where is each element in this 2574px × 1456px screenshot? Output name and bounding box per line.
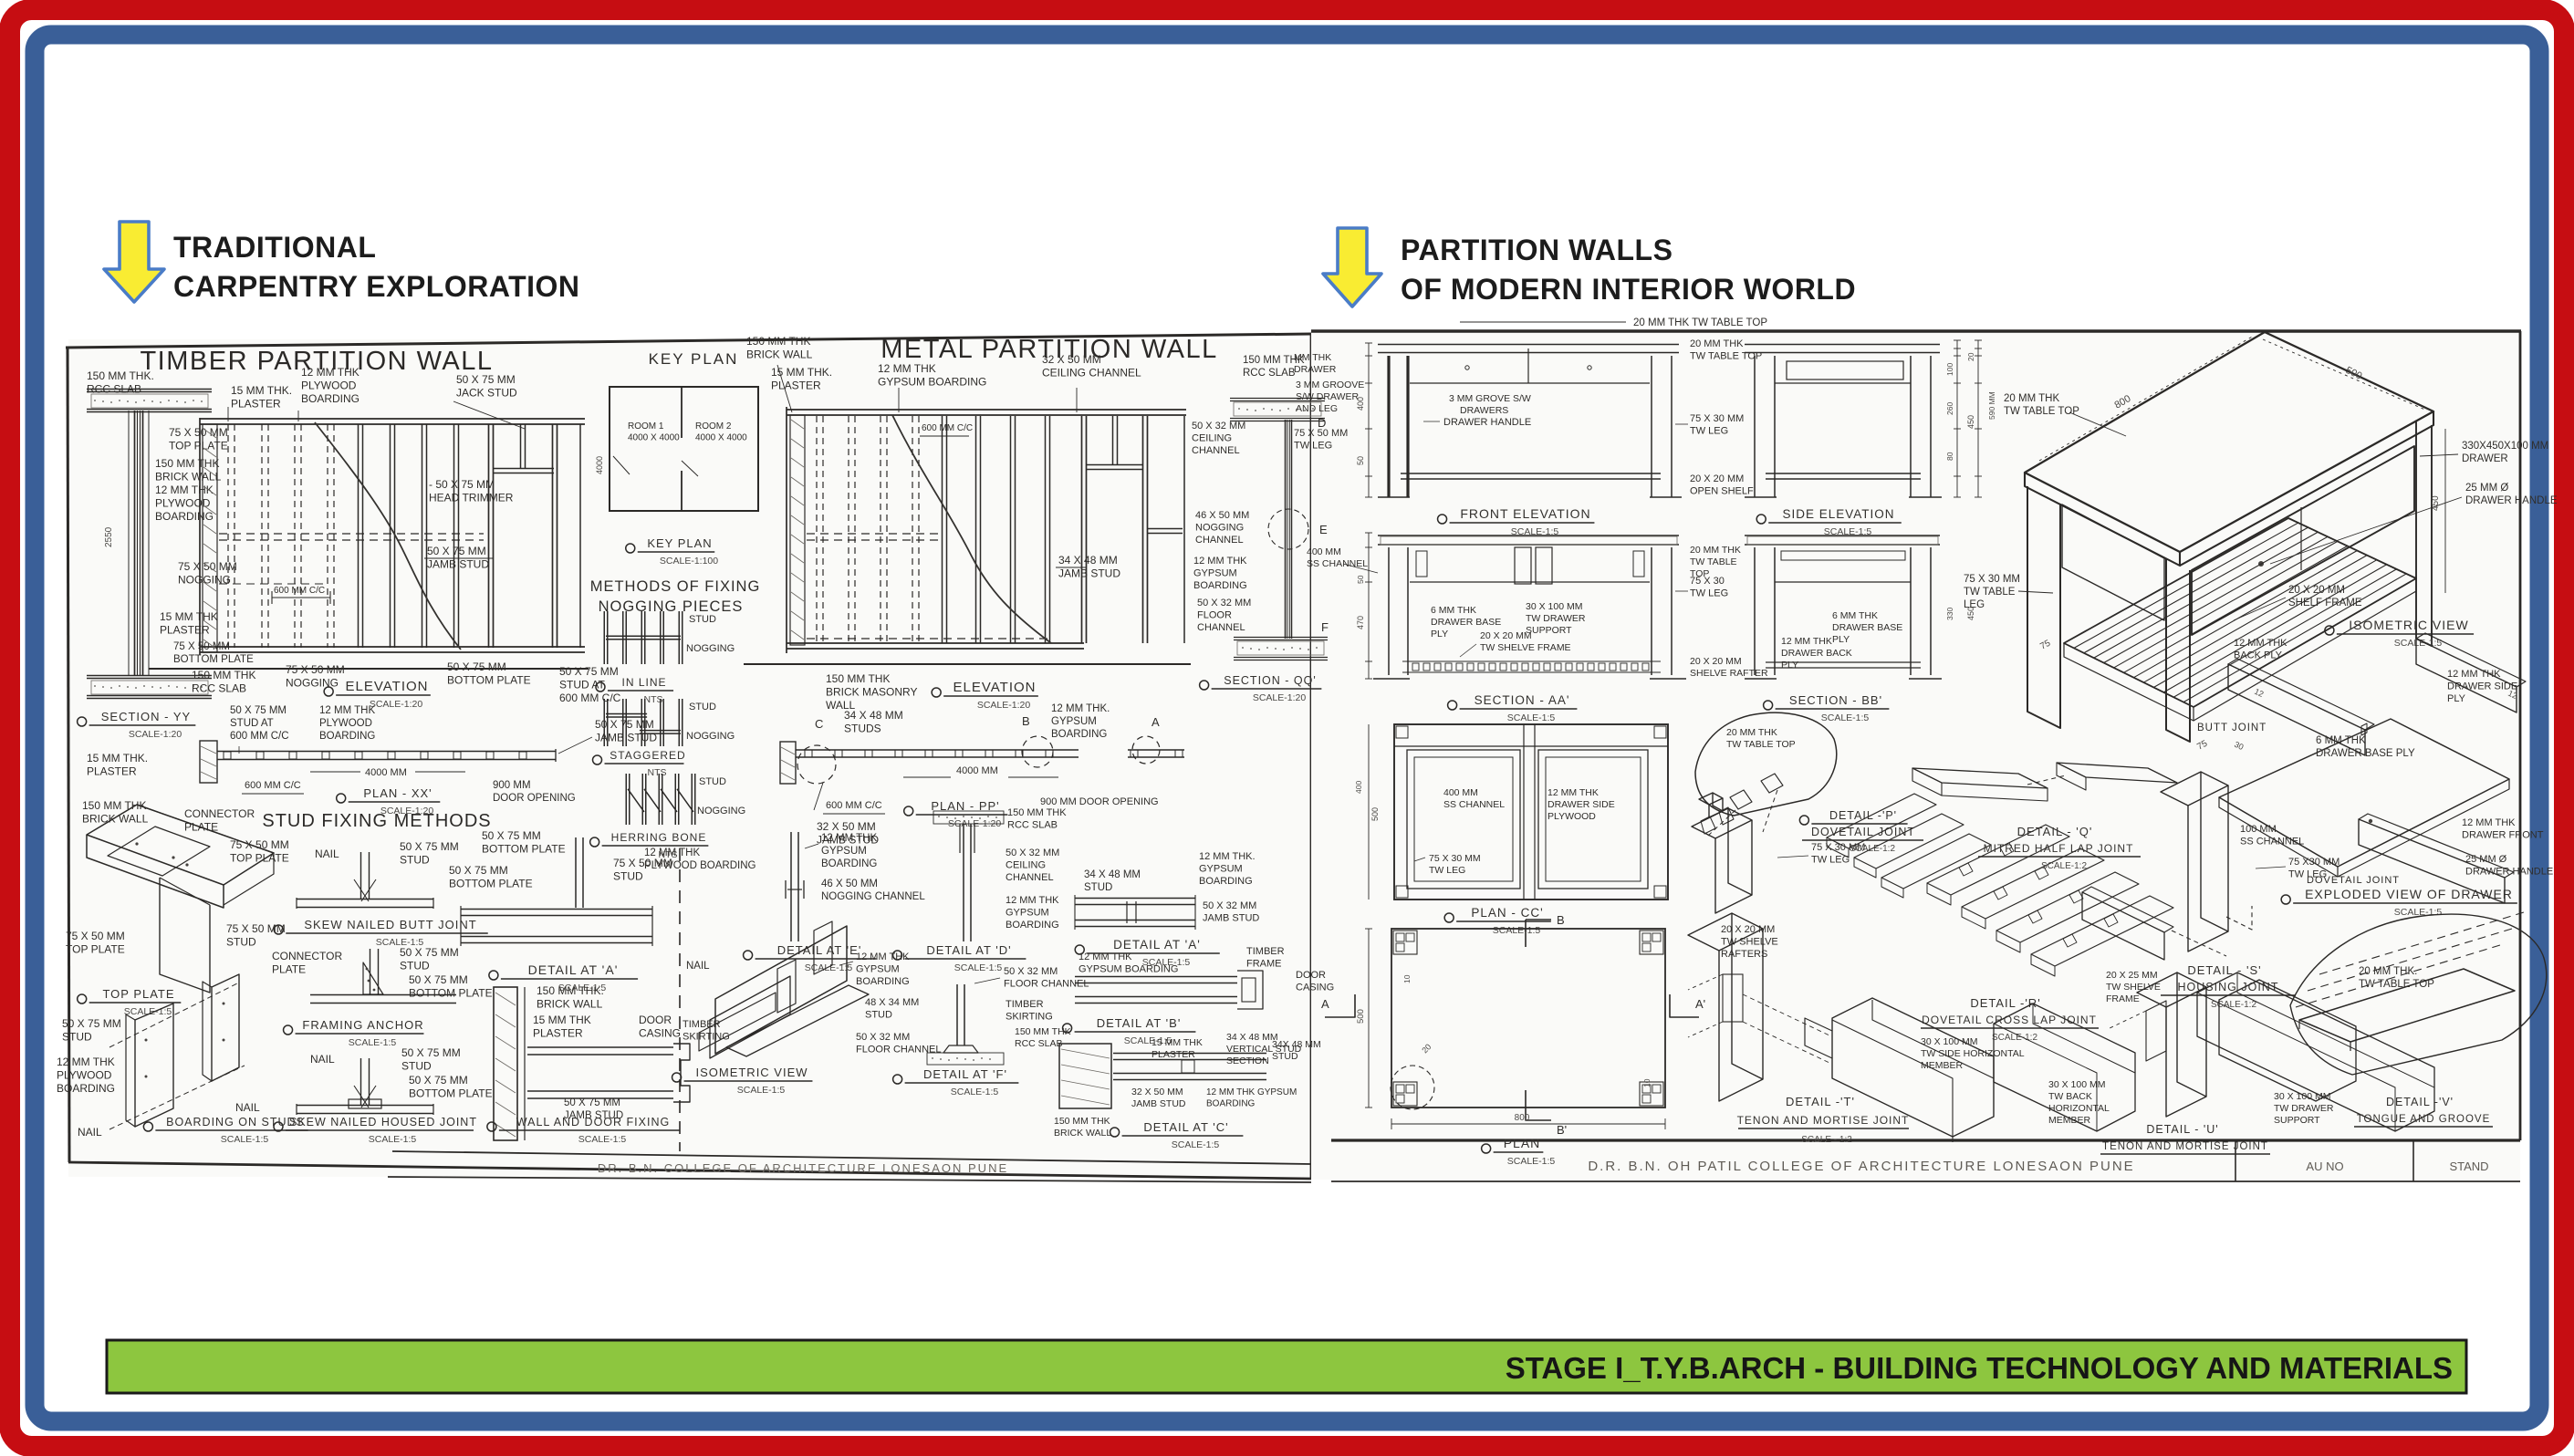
svg-text:JAMB STUD: JAMB STUD (595, 732, 657, 744)
svg-text:400 MM: 400 MM (1443, 787, 1478, 798)
svg-text:75 X 50 MM: 75 X 50 MM (230, 838, 289, 851)
svg-text:ISOMETRIC VIEW: ISOMETRIC VIEW (2349, 618, 2468, 632)
svg-text:BOARDING ON STUDS: BOARDING ON STUDS (166, 1116, 305, 1128)
svg-text:25 MM Ø: 25 MM Ø (2465, 854, 2507, 865)
svg-text:DOOR OPENING: DOOR OPENING (493, 793, 576, 804)
svg-text:20 X 20 MM: 20 X 20 MM (2288, 585, 2345, 596)
svg-text:450: 450 (2431, 495, 2441, 511)
svg-text:600 MM C/C: 600 MM C/C (274, 586, 325, 596)
svg-text:DOVETAIL JOINT: DOVETAIL JOINT (2307, 875, 2400, 886)
svg-text:400: 400 (1354, 781, 1363, 794)
svg-text:BOARDING: BOARDING (1206, 1099, 1256, 1109)
svg-text:BOARDING: BOARDING (301, 392, 360, 405)
svg-text:12 MM THK: 12 MM THK (319, 705, 375, 716)
svg-text:50 X 75 MM: 50 X 75 MM (456, 373, 516, 386)
svg-text:BRICK WALL: BRICK WALL (746, 348, 813, 361)
svg-text:TW TABLE TOP: TW TABLE TOP (2359, 979, 2434, 990)
svg-text:SCALE-1:20: SCALE-1:20 (370, 699, 423, 710)
svg-text:RCC SLAB: RCC SLAB (1243, 368, 1296, 379)
svg-text:SS CHANNEL: SS CHANNEL (1443, 799, 1505, 810)
svg-text:4000 X 4000: 4000 X 4000 (628, 433, 680, 443)
svg-text:SCALE-1:5: SCALE-1:5 (951, 1087, 999, 1097)
svg-text:NAIL: NAIL (686, 961, 710, 972)
svg-text:12 MM THK: 12 MM THK (155, 484, 214, 496)
svg-text:12 MM THK: 12 MM THK (1193, 556, 1247, 567)
svg-text:12 MM THK: 12 MM THK (821, 833, 877, 844)
svg-text:TIMBER: TIMBER (1006, 999, 1044, 1010)
svg-text:SCALE-1:5: SCALE-1:5 (369, 1134, 417, 1145)
svg-text:GYPSUM: GYPSUM (821, 846, 867, 857)
svg-text:FLOOR CHANNEL: FLOOR CHANNEL (856, 1045, 942, 1056)
svg-text:STUD AT: STUD AT (559, 679, 605, 692)
svg-text:PLASTER: PLASTER (231, 398, 281, 411)
svg-text:GYPSUM BOARDING: GYPSUM BOARDING (878, 376, 986, 389)
svg-text:500: 500 (1356, 1009, 1366, 1024)
svg-text:12 MM THK: 12 MM THK (644, 848, 700, 858)
svg-text:TW LEG: TW LEG (1429, 865, 1465, 876)
svg-text:CASING: CASING (1296, 983, 1334, 993)
svg-text:IN LINE: IN LINE (621, 676, 666, 689)
svg-text:FRAME: FRAME (1246, 959, 1282, 970)
svg-text:DR. B.N. COLLEGE OF ARCHITECTU: DR. B.N. COLLEGE OF ARCHITECTURE LONESAO… (598, 1161, 1008, 1175)
svg-text:800: 800 (1515, 1113, 1530, 1123)
svg-text:TIMBER: TIMBER (683, 1019, 721, 1030)
svg-text:DETAIL -'R': DETAIL -'R' (1970, 996, 2040, 1010)
svg-text:30 X 100 MM: 30 X 100 MM (2274, 1091, 2330, 1102)
svg-text:TONGUE AND GROOVE: TONGUE AND GROOVE (2357, 1114, 2491, 1125)
svg-text:20 MM THK: 20 MM THK (1726, 727, 1777, 738)
svg-text:GYPSUM: GYPSUM (856, 964, 900, 975)
svg-text:DETAIL - 'Q': DETAIL - 'Q' (2017, 825, 2093, 838)
svg-text:CONNECTOR: CONNECTOR (184, 807, 255, 820)
svg-text:12 MM THK GYPSUM: 12 MM THK GYPSUM (1206, 1087, 1297, 1097)
svg-text:75 X 50 MM: 75 X 50 MM (66, 930, 125, 942)
svg-text:SKIRTING: SKIRTING (683, 1032, 730, 1043)
svg-text:A: A (1321, 997, 1329, 1011)
svg-text:12 MM THK: 12 MM THK (301, 366, 360, 379)
svg-text:34 X 48 MM: 34 X 48 MM (844, 709, 903, 722)
svg-text:12 MM THK: 12 MM THK (1548, 787, 1599, 798)
svg-text:STUD: STUD (689, 702, 716, 712)
svg-text:CHANNEL: CHANNEL (1197, 622, 1245, 633)
svg-text:BRICK WALL: BRICK WALL (1054, 1128, 1111, 1139)
svg-text:TW TABLE: TW TABLE (1964, 587, 2016, 598)
svg-text:PLY: PLY (2447, 693, 2466, 704)
svg-text:32 X 50 MM: 32 X 50 MM (1131, 1087, 1183, 1097)
svg-text:DETAIL - 'S': DETAIL - 'S' (2187, 963, 2261, 977)
svg-text:12 MM THK: 12 MM THK (1006, 895, 1059, 906)
svg-text:BACK PLY: BACK PLY (2234, 650, 2283, 661)
svg-text:75 X 30 MM: 75 X 30 MM (1964, 574, 2020, 585)
svg-text:BOTTOM PLATE: BOTTOM PLATE (409, 987, 493, 1000)
svg-text:HOUSING JOINT: HOUSING JOINT (2178, 981, 2279, 993)
svg-text:600 MM C/C: 600 MM C/C (559, 692, 621, 704)
svg-text:20 MM THK.: 20 MM THK. (2359, 966, 2417, 977)
svg-text:CONNECTOR: CONNECTOR (272, 950, 342, 962)
svg-text:DOOR: DOOR (639, 1014, 672, 1026)
svg-text:BOARDING: BOARDING (319, 731, 375, 742)
svg-text:SCALE - 1:2: SCALE - 1:2 (1801, 1135, 1852, 1145)
svg-text:NOGGING: NOGGING (1195, 523, 1244, 534)
svg-text:NOGGING: NOGGING (697, 806, 745, 816)
svg-text:BRICK WALL: BRICK WALL (537, 998, 603, 1011)
svg-text:900 MM: 900 MM (493, 780, 531, 791)
svg-text:500: 500 (1370, 807, 1380, 821)
svg-text:SCALE-1:5: SCALE-1:5 (1172, 1139, 1220, 1150)
svg-text:ROOM 1: ROOM 1 (628, 421, 664, 432)
svg-text:STAGE I_T.Y.B.ARCH - BUILDING: STAGE I_T.Y.B.ARCH - BUILDING TECHNOLOGY… (1506, 1351, 2453, 1385)
svg-text:2550: 2550 (104, 526, 114, 547)
svg-text:SCALE-1:5: SCALE-1:5 (954, 962, 1003, 973)
svg-text:STUD: STUD (226, 936, 256, 949)
svg-text:DRAWER SIDE: DRAWER SIDE (2447, 681, 2517, 692)
svg-text:600 MM C/C: 600 MM C/C (826, 800, 882, 811)
svg-text:BRICK WALL: BRICK WALL (155, 471, 222, 484)
svg-text:4000 MM: 4000 MM (956, 765, 998, 776)
svg-text:PLAN - CC': PLAN - CC' (1471, 906, 1543, 920)
svg-text:TOP PLATE: TOP PLATE (169, 440, 228, 452)
svg-text:150 MM THK.: 150 MM THK. (537, 984, 604, 997)
svg-text:BOARDING: BOARDING (856, 976, 910, 987)
svg-text:12 MM THK.: 12 MM THK. (1051, 703, 1110, 714)
svg-text:46 X 50 MM: 46 X 50 MM (1195, 510, 1249, 521)
svg-text:SECTION: SECTION (1226, 1056, 1269, 1066)
svg-text:PLASTER: PLASTER (771, 380, 821, 392)
svg-text:50 X 32 MM: 50 X 32 MM (1192, 421, 1245, 432)
svg-text:12 MM THK: 12 MM THK (1079, 952, 1132, 962)
svg-text:SCALE-1:5: SCALE-1:5 (349, 1037, 397, 1048)
svg-text:BOARDING: BOARDING (1006, 920, 1059, 931)
svg-text:20 MM THK: 20 MM THK (1690, 338, 1744, 349)
svg-text:JAMB STUD: JAMB STUD (1131, 1098, 1186, 1109)
svg-text:DOVETAIL JOINT: DOVETAIL JOINT (1811, 826, 1915, 838)
svg-text:PLASTER: PLASTER (87, 765, 137, 778)
svg-text:75 X 30 MM: 75 X 30 MM (1690, 413, 1744, 424)
svg-text:DRAWER HANDLE: DRAWER HANDLE (2465, 495, 2558, 506)
svg-text:SKIRTING: SKIRTING (1006, 1012, 1053, 1023)
svg-text:30 X 100 MM: 30 X 100 MM (2048, 1079, 2105, 1090)
svg-text:ELEVATION: ELEVATION (954, 680, 1037, 695)
svg-text:470: 470 (1356, 616, 1365, 629)
svg-text:TOP PLATE: TOP PLATE (230, 852, 289, 865)
svg-text:PLATE: PLATE (184, 821, 218, 834)
svg-text:DRAWER HANDLE: DRAWER HANDLE (1443, 417, 1531, 428)
svg-text:RCC SLAB: RCC SLAB (192, 682, 246, 695)
svg-text:100: 100 (1945, 363, 1954, 376)
svg-text:SCALE-1:5: SCALE-1:5 (1493, 925, 1541, 936)
svg-text:CHANNEL: CHANNEL (1195, 535, 1244, 546)
svg-text:PLYWOOD: PLYWOOD (301, 380, 357, 392)
svg-text:PLATE: PLATE (272, 963, 306, 976)
svg-text:CEILING: CEILING (1006, 860, 1046, 871)
svg-text:150 MM THK: 150 MM THK (1054, 1116, 1110, 1127)
svg-text:20 MM THK: 20 MM THK (1690, 545, 1741, 556)
svg-text:DETAIL AT 'A': DETAIL AT 'A' (528, 962, 619, 977)
svg-text:TW LEG: TW LEG (1690, 588, 1728, 599)
svg-text:20 X 25 MM: 20 X 25 MM (2106, 970, 2158, 981)
svg-text:20: 20 (1966, 352, 1975, 361)
svg-text:CASING: CASING (639, 1027, 681, 1040)
svg-text:HEAD TRIMMER: HEAD TRIMMER (429, 492, 514, 504)
svg-text:DETAIL AT 'C': DETAIL AT 'C' (1143, 1120, 1228, 1134)
svg-text:50 X 75 MM: 50 X 75 MM (409, 1074, 468, 1087)
svg-text:BOARDING: BOARDING (1051, 729, 1107, 740)
svg-text:34X 48 MM: 34X 48 MM (1272, 1039, 1321, 1050)
svg-text:30 X 100 MM: 30 X 100 MM (1526, 601, 1582, 612)
svg-text:MEMBER: MEMBER (2048, 1115, 2091, 1126)
svg-text:DETAIL AT 'B': DETAIL AT 'B' (1097, 1016, 1182, 1030)
svg-text:GYPSUM: GYPSUM (1199, 864, 1243, 875)
svg-text:- 50 X 75 MM: - 50 X 75 MM (429, 478, 495, 491)
svg-text:80: 80 (1945, 452, 1954, 461)
svg-text:12 MM THK: 12 MM THK (2462, 817, 2516, 828)
svg-text:SCALE-1:100: SCALE-1:100 (660, 556, 718, 567)
svg-text:DETAIL - 'U': DETAIL - 'U' (2146, 1123, 2218, 1136)
svg-text:B: B (1022, 714, 1030, 728)
svg-text:DRAWER SIDE: DRAWER SIDE (1548, 799, 1615, 810)
svg-text:50 X 75 MM: 50 X 75 MM (400, 840, 459, 853)
svg-text:15 MM THK.: 15 MM THK. (87, 752, 148, 764)
svg-text:JAMB STUD: JAMB STUD (1203, 913, 1259, 924)
svg-text:SCALE-1:20: SCALE-1:20 (1253, 692, 1307, 703)
svg-text:FRAMING ANCHOR: FRAMING ANCHOR (302, 1018, 423, 1032)
svg-text:4000 X 4000: 4000 X 4000 (695, 433, 747, 443)
svg-text:260: 260 (1945, 402, 1954, 415)
svg-text:20 X 20 MM: 20 X 20 MM (1690, 473, 1744, 484)
svg-text:75 X 50 MM: 75 X 50 MM (1294, 428, 1348, 439)
svg-text:46 X 50 MM: 46 X 50 MM (821, 879, 878, 889)
svg-text:PLYWOOD: PLYWOOD (319, 718, 372, 729)
svg-text:PLAN: PLAN (1504, 1136, 1541, 1150)
svg-text:ISOMETRIC VIEW: ISOMETRIC VIEW (695, 1066, 808, 1079)
svg-text:AND LEG: AND LEG (1296, 403, 1338, 414)
svg-text:B': B' (1557, 1123, 1567, 1137)
svg-text:TW TABLE: TW TABLE (1690, 556, 1737, 567)
svg-text:STUD: STUD (400, 960, 430, 972)
svg-text:50 X 32 MM: 50 X 32 MM (856, 1032, 910, 1043)
svg-text:DRAWER: DRAWER (1294, 364, 1337, 375)
svg-text:DRAWER BACK: DRAWER BACK (1781, 648, 1852, 659)
svg-text:BOTTOM PLATE: BOTTOM PLATE (409, 1087, 493, 1100)
svg-text:TW LEG: TW LEG (1690, 426, 1728, 437)
svg-text:STUD: STUD (1272, 1051, 1298, 1062)
svg-text:A': A' (1695, 997, 1705, 1011)
svg-text:STAND: STAND (2449, 1160, 2488, 1173)
svg-text:SCALE-1:5: SCALE-1:5 (805, 962, 853, 973)
svg-text:DETAIL -'V': DETAIL -'V' (2386, 1096, 2454, 1108)
svg-text:SCALE-1:20: SCALE-1:20 (129, 729, 182, 740)
svg-text:50 X 75 MM: 50 X 75 MM (401, 1046, 461, 1059)
svg-text:75 X 50 MM: 75 X 50 MM (169, 426, 228, 439)
svg-text:50 X 75 MM: 50 X 75 MM (564, 1097, 620, 1108)
svg-text:NOGGING CHANNEL: NOGGING CHANNEL (821, 891, 925, 902)
svg-text:SHELVE RAFTER: SHELVE RAFTER (1690, 668, 1768, 679)
svg-text:TW DRAWER: TW DRAWER (2274, 1103, 2334, 1114)
svg-text:150 MM THK: 150 MM THK (82, 799, 146, 812)
svg-text:SECTION - BB': SECTION - BB' (1789, 693, 1882, 707)
svg-text:50 X 32 MM: 50 X 32 MM (1006, 848, 1059, 858)
svg-text:50 X 75 MM: 50 X 75 MM (62, 1017, 121, 1030)
svg-text:WALL AND DOOR FIXING: WALL AND DOOR FIXING (516, 1116, 670, 1128)
svg-text:TOP PLATE: TOP PLATE (102, 987, 174, 1001)
svg-text:STUD: STUD (613, 870, 643, 883)
svg-text:DOOR: DOOR (1296, 970, 1326, 981)
svg-text:SECTION - AA': SECTION - AA' (1475, 693, 1570, 707)
svg-text:12 MM THK: 12 MM THK (2234, 638, 2287, 649)
svg-text:TW SIDE HORIZONTAL: TW SIDE HORIZONTAL (1921, 1048, 2025, 1059)
svg-text:15 MM THK.: 15 MM THK. (231, 384, 292, 397)
svg-text:15 MM THK: 15 MM THK (160, 610, 218, 623)
svg-text:LEG: LEG (1964, 599, 1985, 610)
svg-text:GYPSUM: GYPSUM (1193, 568, 1237, 579)
svg-text:150 MM THK: 150 MM THK (826, 672, 890, 685)
svg-text:FLOOR: FLOOR (1197, 610, 1232, 621)
svg-text:30 X 100 MM: 30 X 100 MM (1921, 1036, 1977, 1047)
svg-text:GYPSUM BOARDING: GYPSUM BOARDING (1079, 964, 1178, 975)
svg-text:DETAIL AT 'F': DETAIL AT 'F' (923, 1067, 1007, 1081)
svg-text:DRAWER: DRAWER (2462, 453, 2508, 464)
svg-text:KEY PLAN: KEY PLAN (647, 536, 712, 550)
svg-text:SECTION - YY: SECTION - YY (101, 710, 191, 723)
svg-text:TOP: TOP (1690, 568, 1709, 579)
svg-text:SCALE-1:5: SCALE-1:5 (737, 1085, 786, 1096)
svg-text:SCALE-1:5: SCALE-1:5 (1821, 712, 1870, 723)
svg-text:10: 10 (1402, 974, 1412, 983)
svg-text:150 MM THK.: 150 MM THK. (87, 369, 154, 382)
svg-text:20 MM THK: 20 MM THK (2004, 393, 2059, 404)
svg-text:DRAWER HANDLE: DRAWER HANDLE (2465, 867, 2553, 878)
svg-text:25 MM Ø: 25 MM Ø (2465, 483, 2508, 494)
svg-text:6 MM THK: 6 MM THK (2316, 735, 2366, 746)
svg-text:TW LEG: TW LEG (1294, 441, 1332, 452)
svg-text:DETAIL -'P': DETAIL -'P' (1829, 809, 1897, 822)
svg-text:MITRED HALF LAP JOINT: MITRED HALF LAP JOINT (1984, 842, 2134, 855)
svg-text:12 MM THK: 12 MM THK (878, 362, 936, 375)
svg-text:DETAIL AT 'A': DETAIL AT 'A' (1113, 938, 1201, 952)
svg-text:F: F (1321, 620, 1329, 634)
svg-text:SKEW NAILED BUTT JOINT: SKEW NAILED BUTT JOINT (304, 918, 476, 931)
svg-text:12 MM THK: 12 MM THK (57, 1056, 115, 1068)
svg-text:SUPPORT: SUPPORT (2274, 1115, 2320, 1126)
svg-text:50: 50 (1356, 575, 1365, 584)
svg-text:590 MM: 590 MM (1987, 391, 1996, 420)
svg-text:BOARDING: BOARDING (1193, 580, 1247, 591)
svg-text:BOTTOM PLATE: BOTTOM PLATE (447, 674, 531, 687)
svg-text:6 MM THK: 6 MM THK (1431, 605, 1476, 616)
svg-text:C: C (815, 717, 823, 731)
svg-text:12 MM THK: 12 MM THK (2447, 669, 2501, 680)
svg-text:150 MM THK: 150 MM THK (1007, 807, 1067, 818)
svg-text:20 X 20 MM: 20 X 20 MM (1721, 924, 1775, 935)
svg-text:BOARDING: BOARDING (1199, 876, 1253, 887)
svg-text:PARTITION WALLS: PARTITION WALLS (1401, 234, 1673, 266)
svg-text:15 MM THK.: 15 MM THK. (771, 366, 832, 379)
svg-text:TW SHELVE: TW SHELVE (2106, 982, 2161, 993)
svg-text:TW TABLE TOP: TW TABLE TOP (2004, 406, 2079, 417)
svg-text:STUDS: STUDS (844, 723, 881, 735)
svg-text:450: 450 (1966, 415, 1975, 429)
svg-text:48 X 34 MM: 48 X 34 MM (865, 997, 919, 1008)
svg-text:6 MM THK: 6 MM THK (1832, 610, 1878, 621)
svg-text:FLOOR CHANNEL: FLOOR CHANNEL (1004, 979, 1089, 990)
svg-text:32 X 50 MM: 32 X 50 MM (817, 820, 876, 833)
svg-text:PLASTER: PLASTER (533, 1027, 583, 1040)
svg-text:SCALE-1:5: SCALE-1:5 (1507, 712, 1556, 723)
svg-text:34 X 48 MM: 34 X 48 MM (1084, 869, 1141, 880)
svg-text:SCALE-1:5: SCALE-1:5 (1507, 1156, 1556, 1167)
svg-text:3 MM GROOVE: 3 MM GROOVE (1296, 380, 1364, 390)
svg-text:900 MM DOOR OPENING: 900 MM DOOR OPENING (1040, 796, 1159, 807)
svg-text:BOTTOM PLATE: BOTTOM PLATE (173, 654, 254, 665)
svg-text:JAMB STUD: JAMB STUD (1058, 567, 1120, 580)
svg-text:75 X 50 MM: 75 X 50 MM (286, 663, 345, 676)
svg-text:330X450X100 MM: 330X450X100 MM (2462, 441, 2548, 452)
svg-text:600 MM C/C: 600 MM C/C (922, 423, 973, 433)
svg-text:PLY: PLY (1832, 634, 1850, 645)
svg-text:100 MM: 100 MM (2240, 824, 2277, 835)
svg-text:600 MM C/C: 600 MM C/C (230, 731, 289, 742)
svg-text:50 X 75 MM: 50 X 75 MM (559, 665, 619, 678)
svg-text:4000: 4000 (595, 456, 604, 474)
svg-text:BOARDING: BOARDING (821, 858, 877, 869)
svg-text:TW SHELVE FRAME: TW SHELVE FRAME (1480, 642, 1571, 653)
svg-text:50 X 32 MM: 50 X 32 MM (1197, 598, 1251, 608)
svg-text:ROOM 2: ROOM 2 (695, 421, 732, 432)
svg-text:400 MM: 400 MM (1307, 546, 1341, 557)
svg-text:STUD: STUD (401, 1060, 432, 1073)
svg-text:SHELF FRAME: SHELF FRAME (2288, 598, 2362, 608)
svg-text:NOGGING: NOGGING (686, 731, 735, 742)
svg-text:PLYWOOD BOARDING: PLYWOOD BOARDING (644, 860, 756, 871)
svg-text:GYPSUM: GYPSUM (1006, 908, 1049, 919)
svg-text:GYPSUM: GYPSUM (1051, 716, 1097, 727)
svg-text:SCALE-1:2: SCALE-1:2 (2041, 861, 2087, 871)
svg-text:50: 50 (1356, 456, 1365, 465)
svg-text:NAIL: NAIL (315, 848, 339, 860)
svg-text:20 X 20 MM: 20 X 20 MM (1690, 656, 1742, 667)
svg-text:PLY: PLY (1781, 660, 1798, 671)
svg-text:75 X30 MM: 75 X30 MM (2288, 857, 2340, 868)
svg-text:BOARDING: BOARDING (155, 510, 214, 523)
svg-text:NOGGING PIECES: NOGGING PIECES (599, 598, 744, 615)
svg-text:TIMBER: TIMBER (1246, 946, 1285, 957)
svg-text:DETAIL AT 'E': DETAIL AT 'E' (777, 943, 862, 957)
svg-text:50 X 32 MM: 50 X 32 MM (1203, 900, 1256, 911)
svg-text:PLASTER: PLASTER (1152, 1049, 1195, 1060)
svg-text:NOGGING: NOGGING (686, 643, 735, 654)
svg-text:SKEW NAILED HOUSED JOINT: SKEW NAILED HOUSED JOINT (289, 1116, 477, 1128)
svg-text:12 MM THK.: 12 MM THK. (1199, 851, 1256, 862)
svg-text:50 X 75 MM: 50 X 75 MM (482, 829, 541, 842)
svg-text:SCALE-1:20: SCALE-1:20 (977, 700, 1031, 711)
svg-text:600 MM C/C: 600 MM C/C (245, 780, 301, 791)
svg-text:50 X 75 MM: 50 X 75 MM (409, 973, 468, 986)
svg-text:DETAIL -'T': DETAIL -'T' (1786, 1095, 1855, 1108)
svg-text:BUTT JOINT: BUTT JOINT (2197, 723, 2267, 733)
svg-text:20 MM THK TW TABLE TOP: 20 MM THK TW TABLE TOP (1633, 317, 1767, 328)
svg-text:4000 MM: 4000 MM (365, 767, 407, 778)
svg-text:METHODS OF FIXING: METHODS OF FIXING (590, 578, 761, 595)
svg-text:50 X 75 MM: 50 X 75 MM (447, 660, 506, 673)
svg-text:STUD AT: STUD AT (230, 718, 274, 729)
svg-text:STUD: STUD (62, 1031, 92, 1044)
svg-text:ELEVATION: ELEVATION (346, 679, 429, 694)
svg-text:KEY PLAN: KEY PLAN (649, 350, 739, 368)
svg-text:12 MM THK: 12 MM THK (856, 952, 910, 962)
svg-text:12 MM THK: 12 MM THK (1781, 636, 1832, 647)
svg-text:DRAWER BASE PLY: DRAWER BASE PLY (2316, 748, 2415, 759)
svg-text:34 X 48 MM: 34 X 48 MM (1226, 1032, 1278, 1043)
